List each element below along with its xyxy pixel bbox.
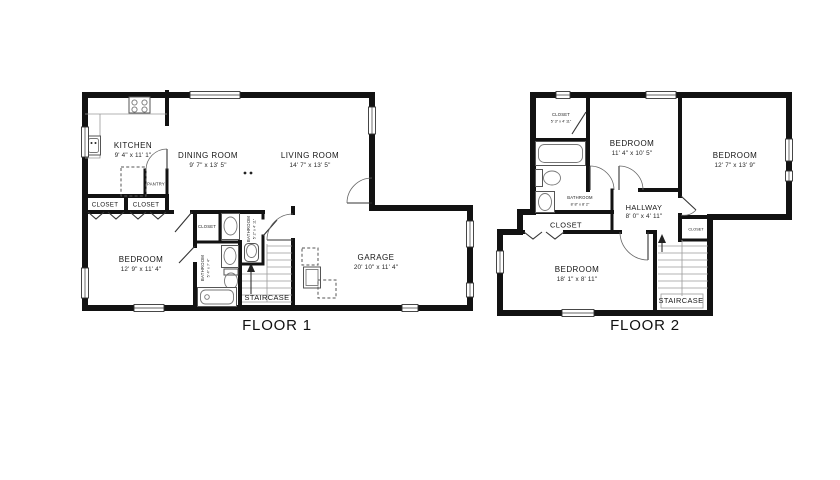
- bathroom-b-dims: 5' 4" x 7' 4": [207, 258, 211, 277]
- room-label-bedroom-f1: BEDROOM: [119, 255, 164, 264]
- room-dims-bedroom-mid: 11' 4" x 10' 5": [612, 150, 653, 157]
- bathroom-a-dims: 5' 2" x 4' 11": [253, 218, 257, 239]
- bathroom-f2-label: BATHROOM: [567, 195, 593, 200]
- staircase-label-f2: STAIRCASE: [659, 296, 704, 305]
- floor2-sink: [536, 192, 555, 213]
- room-label-kitchen: KITCHEN: [114, 141, 152, 150]
- room-dims-dining-room: 9' 7" x 13' 5": [189, 162, 226, 169]
- floor2-title: FLOOR 2: [610, 317, 680, 334]
- bathroom-b-label: BATHROOM: [200, 255, 205, 281]
- bathroom-a-label: BATHROOM: [246, 216, 251, 242]
- stove: [129, 97, 150, 113]
- floorplan-page: KITCHEN 9' 4" x 11' 1" DINING ROOM 9' 7"…: [0, 0, 840, 480]
- closet-b-label: CLOSET: [133, 202, 160, 209]
- room-label-living-room: LIVING ROOM: [281, 151, 339, 160]
- room-label-garage: GARAGE: [358, 253, 395, 262]
- room-label-bedroom-mid: BEDROOM: [610, 139, 655, 148]
- room-dims-bedroom-bottom: 18' 1" x 8' 11": [557, 276, 598, 283]
- floorplan-canvas: KITCHEN 9' 4" x 11' 1" DINING ROOM 9' 7"…: [0, 0, 840, 480]
- closet-top-label: CLOSET: [552, 112, 570, 117]
- room-dims-kitchen: 9' 4" x 11' 1": [115, 152, 152, 159]
- pantry-label: PANTRY: [147, 182, 165, 187]
- room-dims-garage: 20' 10" x 11' 4": [354, 264, 398, 271]
- closet-wide-label: CLOSET: [550, 221, 582, 230]
- room-label-bedroom-right: BEDROOM: [713, 151, 758, 160]
- hallway-dims: 8' 0" x 4' 11": [626, 213, 663, 220]
- bathroom-a-sink: [222, 214, 240, 240]
- floor1-title: FLOOR 1: [242, 317, 312, 334]
- bathroom-a-toilet: [245, 244, 259, 262]
- room-label-bedroom-bottom: BEDROOM: [555, 265, 600, 274]
- closet-a-label: CLOSET: [92, 202, 119, 209]
- bathroom-b-sink: [222, 246, 239, 268]
- bathtub: [198, 288, 237, 307]
- bathroom-f2-dims: 8' 8" x 8' 2": [571, 203, 590, 207]
- floor2-bathtub: [536, 142, 586, 166]
- room-dims-bedroom-f1: 12' 9" x 11' 4": [121, 266, 162, 273]
- hallway-label: HALLWAY: [626, 203, 663, 212]
- closet-top-dims: 5' 3" x 4' 11": [551, 120, 572, 124]
- room-label-dining-room: DINING ROOM: [178, 151, 238, 160]
- closet-stairs-label: CLOSET: [688, 228, 704, 232]
- room-dims-living-room: 14' 7" x 13' 5": [289, 162, 330, 169]
- room-dims-bedroom-right: 12' 7" x 13' 9": [714, 162, 755, 169]
- closet-hall-label: CLOSET: [198, 224, 216, 229]
- floor1-plan: KITCHEN 9' 4" x 11' 1" DINING ROOM 9' 7"…: [82, 92, 474, 335]
- staircase-label-f1: STAIRCASE: [245, 293, 290, 302]
- floor2-plan: CLOSET 5' 3" x 4' 11" BEDROOM 11' 4" x 1…: [497, 92, 793, 335]
